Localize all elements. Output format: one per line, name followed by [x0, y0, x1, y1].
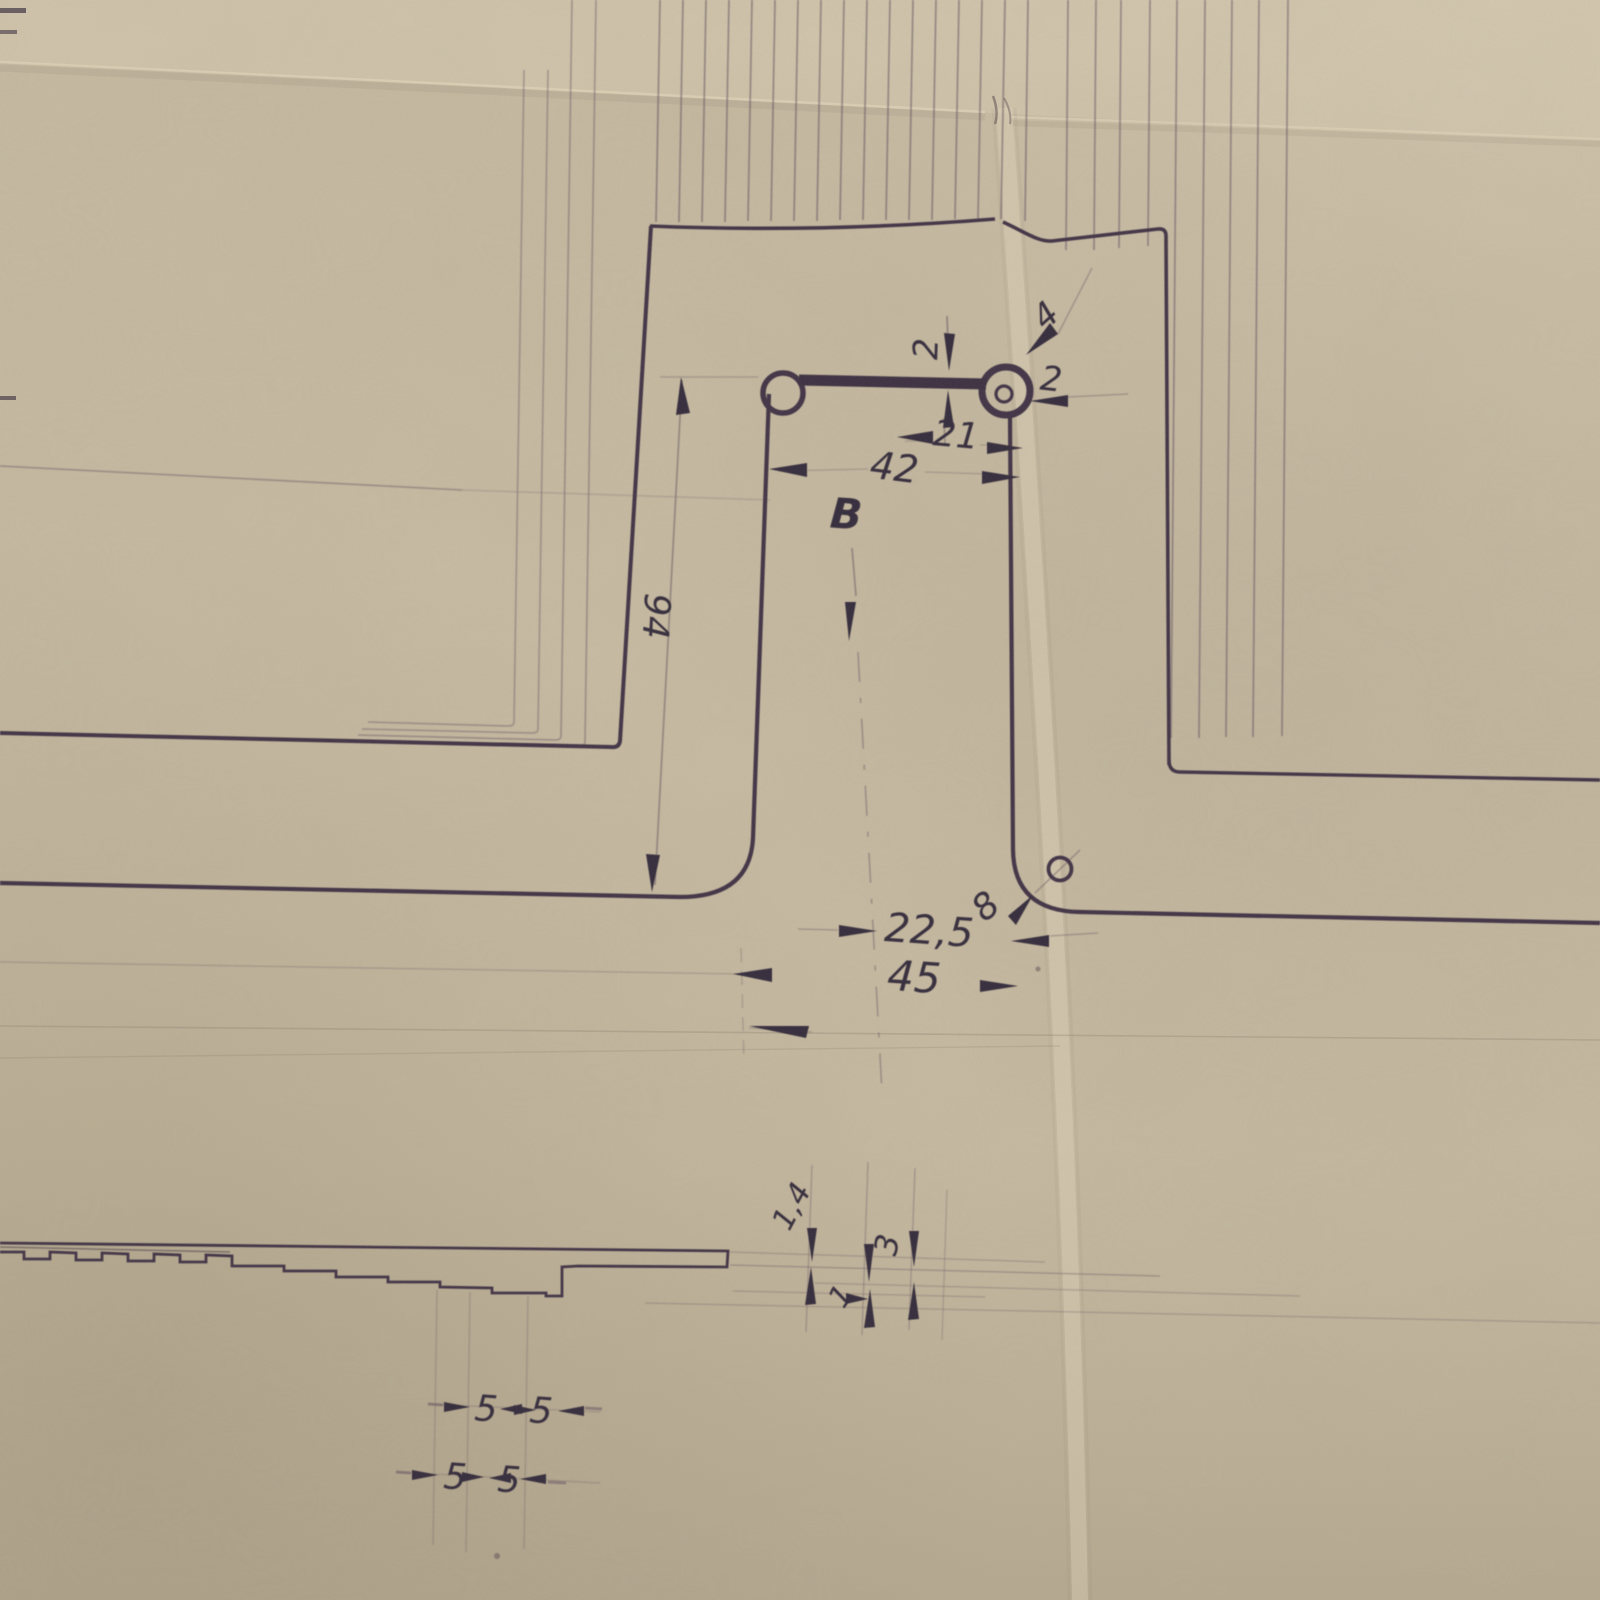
photo-of-technical-drawing: 2 4 2 21 42 B 94 22,5 8 45 1,4 3 1 5 5 5… [0, 0, 1600, 1600]
photo-grain-overlay [0, 0, 1600, 1600]
drawing-canvas: 2 4 2 21 42 B 94 22,5 8 45 1,4 3 1 5 5 5… [0, 0, 1600, 1600]
